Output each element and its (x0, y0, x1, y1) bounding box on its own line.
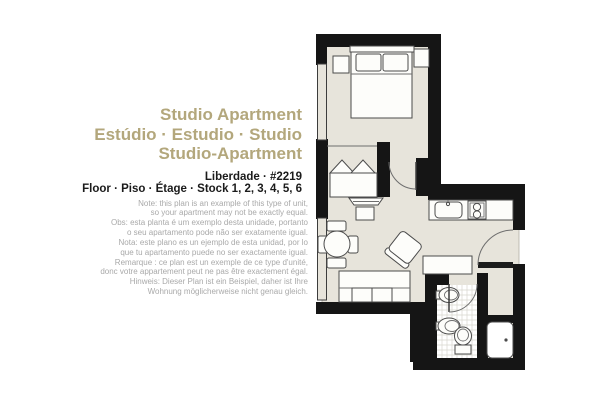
dining-table (324, 231, 350, 257)
side-table (356, 207, 374, 220)
faucet (446, 202, 449, 205)
toilet (455, 327, 472, 354)
tv (349, 198, 383, 205)
double-bed (350, 46, 414, 118)
poster: Studio Apartment Estúdio · Estudio · Stu… (0, 0, 600, 400)
shower (487, 322, 513, 358)
floor-plan (0, 0, 600, 400)
nightstand-right (414, 49, 429, 67)
kitchenette (429, 200, 513, 220)
bathroom (436, 284, 477, 358)
drain (504, 338, 507, 341)
nightstand-left (333, 56, 349, 73)
window-lower (318, 218, 327, 300)
window-upper (318, 64, 327, 140)
wardrobe (423, 256, 472, 274)
sofa (339, 271, 410, 302)
